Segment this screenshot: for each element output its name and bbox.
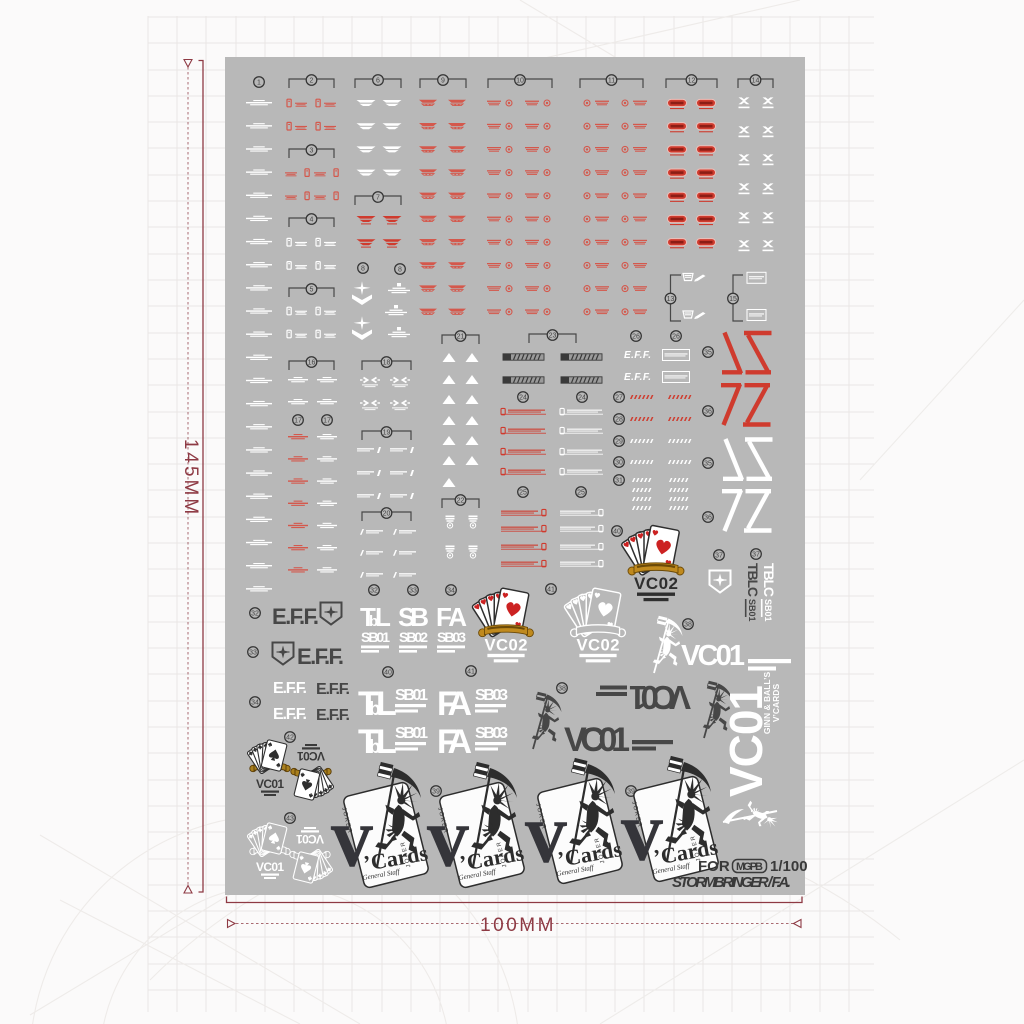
svg-text:145MM: 145MM	[180, 439, 201, 517]
svg-text:33: 33	[409, 588, 417, 595]
svg-text:FA: FA	[437, 723, 472, 761]
svg-text:100MM: 100MM	[480, 915, 556, 936]
svg-text:SB02: SB02	[399, 629, 428, 645]
svg-text:38: 38	[558, 686, 566, 693]
svg-text:VC01: VC01	[256, 777, 284, 791]
svg-text:26: 26	[672, 334, 680, 341]
svg-text:FOR: FOR	[698, 858, 730, 875]
svg-text:21: 21	[457, 334, 465, 341]
svg-text:FA: FA	[436, 602, 467, 632]
svg-text:43: 43	[286, 816, 294, 823]
svg-text:22: 22	[457, 498, 465, 505]
svg-text:18: 18	[383, 360, 391, 367]
svg-text:34: 34	[251, 700, 259, 707]
svg-text:25: 25	[577, 490, 585, 497]
svg-text:17: 17	[294, 418, 302, 425]
svg-text:31: 31	[615, 478, 623, 485]
svg-text:32: 32	[251, 611, 259, 618]
svg-text:39: 39	[432, 789, 440, 796]
svg-text:15: 15	[729, 296, 737, 303]
svg-text:4: 4	[310, 217, 314, 224]
svg-text:SB01: SB01	[747, 599, 757, 622]
svg-text:17: 17	[323, 418, 331, 425]
svg-text:29: 29	[615, 439, 623, 446]
svg-text:6: 6	[376, 78, 380, 85]
svg-text:20: 20	[383, 511, 391, 518]
svg-text:16: 16	[308, 360, 316, 367]
svg-text:E.F.F.: E.F.F.	[624, 372, 651, 383]
svg-text:E.F.F.: E.F.F.	[272, 604, 319, 629]
svg-text:28: 28	[615, 417, 623, 424]
svg-text:8: 8	[398, 267, 402, 274]
svg-text:38: 38	[684, 622, 692, 629]
svg-text:SB: SB	[398, 602, 429, 632]
svg-text:MGPB: MGPB	[736, 861, 763, 873]
svg-text:2: 2	[310, 78, 314, 85]
svg-text:TBLC: TBLC	[761, 563, 777, 597]
svg-text:41: 41	[547, 587, 555, 594]
svg-text:SB01: SB01	[395, 725, 428, 742]
svg-text:8: 8	[361, 266, 365, 273]
svg-text:34: 34	[447, 588, 455, 595]
svg-text:SB03: SB03	[437, 629, 466, 645]
svg-text:11: 11	[608, 78, 615, 85]
svg-text:FA: FA	[437, 685, 472, 723]
svg-text:E.F.F.: E.F.F.	[624, 350, 651, 361]
svg-text:26: 26	[632, 334, 640, 341]
svg-text:VC01: VC01	[296, 832, 324, 846]
svg-text:VC01: VC01	[564, 721, 630, 759]
svg-text:35: 35	[704, 350, 712, 357]
svg-text:V’CARDS: V’CARDS	[771, 684, 781, 723]
svg-text:5: 5	[310, 287, 314, 294]
svg-text:E.F.F.: E.F.F.	[273, 680, 307, 697]
svg-text:36: 36	[704, 409, 712, 416]
svg-text:35: 35	[704, 461, 712, 468]
svg-text:E.F.F.: E.F.F.	[297, 644, 344, 669]
svg-text:VC02: VC02	[484, 635, 527, 654]
svg-text:1: 1	[257, 80, 261, 87]
svg-text:14: 14	[752, 78, 760, 85]
svg-text:VC01: VC01	[629, 679, 691, 716]
svg-text:VC01: VC01	[256, 860, 284, 874]
svg-text:VC01: VC01	[681, 640, 745, 672]
svg-text:TBLC: TBLC	[745, 563, 761, 597]
svg-text:SB01: SB01	[395, 687, 428, 704]
svg-text:13: 13	[667, 296, 675, 303]
svg-text:25: 25	[519, 490, 527, 497]
svg-text:42: 42	[286, 735, 294, 742]
svg-text:33: 33	[249, 650, 257, 657]
svg-text:VC01: VC01	[297, 749, 325, 763]
svg-text:37: 37	[752, 552, 760, 559]
svg-text:VC01: VC01	[720, 685, 772, 797]
svg-text:b: b	[369, 737, 381, 758]
svg-text:E.F.F.: E.F.F.	[316, 681, 350, 698]
svg-text:E.F.F.: E.F.F.	[316, 707, 350, 724]
svg-text:SB03: SB03	[475, 725, 508, 742]
svg-text:24: 24	[578, 395, 586, 402]
svg-text:9: 9	[441, 78, 445, 85]
svg-text:7: 7	[376, 195, 380, 202]
svg-text:3: 3	[310, 148, 314, 155]
svg-text:30: 30	[615, 460, 623, 467]
svg-text:b: b	[369, 613, 378, 630]
svg-text:32: 32	[370, 588, 378, 595]
svg-text:36: 36	[704, 515, 712, 522]
svg-text:23: 23	[549, 333, 557, 340]
svg-text:12: 12	[688, 78, 696, 85]
svg-text:E.F.F.: E.F.F.	[273, 706, 307, 723]
svg-text:SB01: SB01	[361, 629, 390, 645]
svg-text:VC02: VC02	[634, 574, 678, 593]
svg-text:24: 24	[519, 395, 527, 402]
svg-text:40: 40	[384, 670, 392, 677]
svg-text:37: 37	[715, 553, 723, 560]
svg-text:19: 19	[383, 430, 391, 437]
svg-text:1/100: 1/100	[770, 858, 808, 875]
svg-text:40: 40	[613, 529, 621, 536]
svg-text:b: b	[369, 699, 381, 720]
svg-text:SB01: SB01	[763, 599, 773, 622]
svg-text:41: 41	[467, 669, 475, 676]
svg-text:STORMBRINGER / F.A.: STORMBRINGER / F.A.	[672, 874, 791, 891]
svg-text:27: 27	[615, 395, 623, 402]
svg-text:SB03: SB03	[475, 687, 508, 704]
svg-text:10: 10	[516, 78, 524, 85]
svg-text:VC02: VC02	[576, 635, 619, 654]
